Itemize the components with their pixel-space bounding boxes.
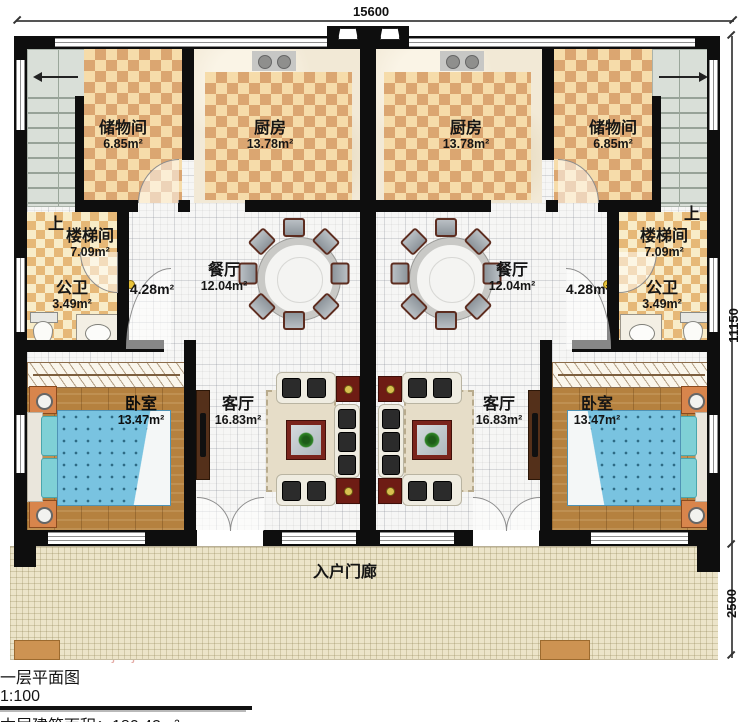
floor-mat bbox=[378, 376, 402, 402]
coffee-table-right bbox=[412, 420, 452, 460]
dimension-line-right bbox=[731, 36, 733, 658]
floor-plan-page: 15600 11150 2500 入户门廊 bbox=[0, 0, 750, 722]
stair-direction-line bbox=[36, 76, 78, 78]
window bbox=[709, 60, 718, 130]
dimension-tick bbox=[729, 16, 737, 24]
stair-direction-line bbox=[659, 76, 701, 78]
stair-up-label-left: 上 bbox=[48, 210, 64, 234]
room-label-storage-left: 储物间6.85m² bbox=[99, 120, 147, 151]
kitchen-sink-left bbox=[252, 51, 296, 71]
room-label-bath-left: 公卫3.49m² bbox=[52, 280, 92, 311]
wall-center bbox=[360, 49, 376, 530]
room-label-stair-right: 楼梯间7.09m² bbox=[640, 228, 688, 259]
room-label-kitchen-right: 厨房13.78m² bbox=[443, 120, 490, 151]
tv-cabinet-left bbox=[196, 390, 210, 480]
room-label-living-right: 客厅16.83m² bbox=[476, 396, 523, 427]
stair-up-label-right: 上 bbox=[684, 200, 700, 224]
porch-step-left bbox=[14, 640, 60, 660]
floor-mat bbox=[336, 478, 360, 504]
stair-steps bbox=[653, 97, 708, 206]
sofa-right-top bbox=[402, 372, 462, 404]
dimension-porch-height-label: 2500 bbox=[724, 589, 739, 618]
window bbox=[282, 532, 356, 544]
wall-stub-right bbox=[697, 546, 720, 572]
area-label-hall-left: 4.28m² bbox=[130, 282, 174, 297]
bed-cushion bbox=[679, 458, 697, 498]
dining-set-right bbox=[389, 217, 499, 327]
window bbox=[48, 532, 145, 544]
room-label-living-left: 客厅16.83m² bbox=[215, 396, 262, 427]
dining-chair bbox=[283, 311, 305, 330]
sofa-left-bottom bbox=[276, 474, 336, 506]
wall-stub-left bbox=[14, 546, 36, 567]
wardrobe-right bbox=[552, 362, 711, 388]
entry-door-opening-right bbox=[473, 530, 539, 546]
room-label-bedroom-right: 卧室13.47m² bbox=[574, 396, 621, 427]
dining-chair bbox=[283, 218, 305, 237]
dimension-line-top bbox=[16, 20, 734, 22]
sofa-right-bottom bbox=[402, 474, 462, 506]
dining-chair bbox=[435, 311, 457, 330]
window bbox=[16, 415, 25, 473]
dining-set-left bbox=[237, 217, 347, 327]
stat-floor-area: 本层建筑面积：180.42m² bbox=[0, 712, 750, 722]
room-label-kitchen-left: 厨房13.78m² bbox=[247, 120, 294, 151]
area-label-hall-right: 4.28m² bbox=[566, 282, 610, 297]
nightstand bbox=[29, 500, 57, 528]
sofa-left-main bbox=[334, 404, 360, 478]
stair-arrow bbox=[28, 72, 42, 82]
dimension-width-label: 15600 bbox=[353, 4, 389, 19]
room-label-dining-left: 餐厅12.04m² bbox=[201, 262, 248, 293]
floor-mat bbox=[378, 478, 402, 504]
window bbox=[709, 415, 718, 473]
nightstand bbox=[681, 500, 709, 528]
window bbox=[409, 38, 695, 47]
bedroom-door-leaf-right bbox=[0, 220, 13, 300]
wardrobe-left bbox=[27, 362, 186, 388]
entry-door-opening-left bbox=[197, 530, 263, 546]
window bbox=[16, 258, 25, 332]
room-label-storage-right: 储物间6.85m² bbox=[589, 120, 637, 151]
dining-chair bbox=[435, 218, 457, 237]
window bbox=[380, 532, 454, 544]
dimension-main-height-label: 11150 bbox=[726, 308, 741, 343]
bed-cushion bbox=[679, 416, 697, 456]
room-label-bath-right: 公卫3.49m² bbox=[642, 280, 682, 311]
porch-step-right bbox=[540, 640, 590, 660]
window bbox=[591, 532, 688, 544]
window bbox=[709, 258, 718, 332]
bedroom-door-leaf-left bbox=[0, 140, 13, 220]
floor-mat bbox=[336, 376, 360, 402]
room-label-bedroom-left: 卧室13.47m² bbox=[118, 396, 165, 427]
coffee-table-left bbox=[286, 420, 326, 460]
nightstand bbox=[681, 386, 709, 414]
plan-scale: 1:100 bbox=[0, 688, 750, 706]
room-label-dining-right: 餐厅12.04m² bbox=[489, 262, 536, 293]
window bbox=[16, 60, 25, 130]
dining-chair bbox=[391, 263, 410, 285]
room-label-stair-left: 楼梯间7.09m² bbox=[66, 228, 114, 259]
room-label-porch: 入户门廊 bbox=[313, 564, 377, 582]
window bbox=[55, 38, 327, 47]
kitchen-sink-right bbox=[440, 51, 484, 71]
plan-title: 一层平面图 bbox=[0, 664, 750, 688]
dining-chair bbox=[331, 263, 350, 285]
nightstand bbox=[29, 386, 57, 414]
sofa-right-main bbox=[378, 404, 404, 478]
sofa-left-top bbox=[276, 372, 336, 404]
